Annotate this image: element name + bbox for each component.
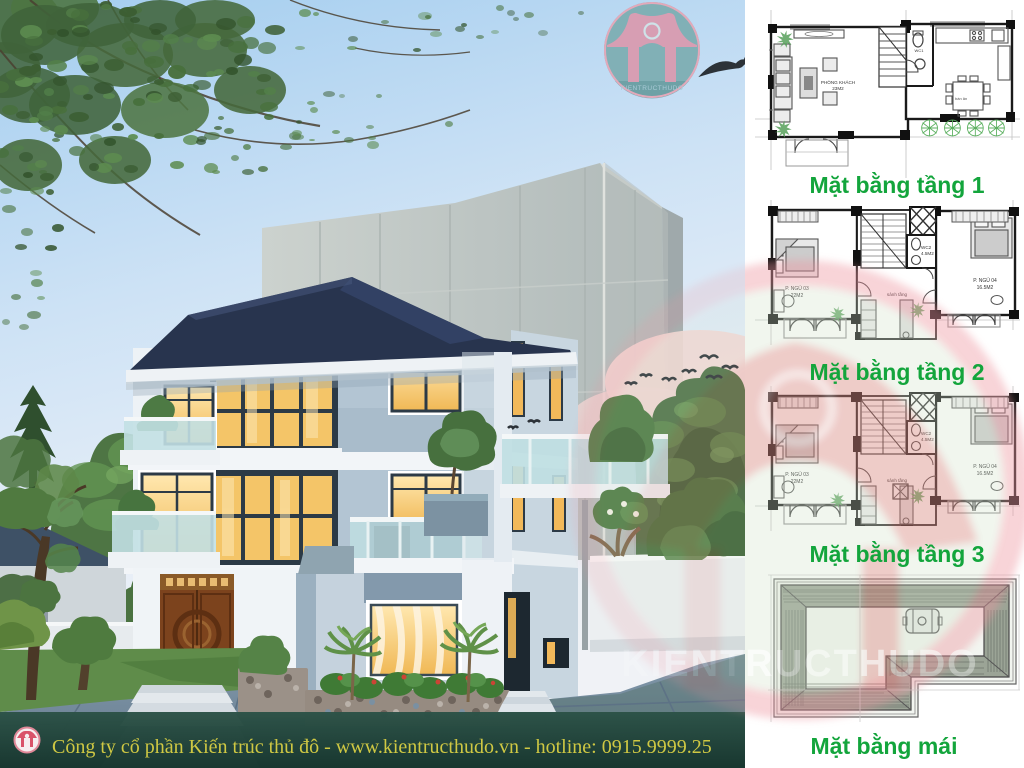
svg-text:WC2: WC2 — [921, 245, 932, 250]
svg-text:Mặt bằng mái: Mặt bằng mái — [811, 732, 958, 759]
svg-text:Mặt bằng tầng 2: Mặt bằng tầng 2 — [809, 358, 984, 385]
svg-text:Mặt bằng tầng 3: Mặt bằng tầng 3 — [809, 540, 984, 567]
svg-text:Mặt bằng tầng 1: Mặt bằng tầng 1 — [809, 171, 984, 198]
svg-text:KIENTRUCTHUDO: KIENTRUCTHUDO — [621, 85, 684, 92]
svg-text:WC1: WC1 — [915, 48, 925, 53]
svg-text:4.5M2: 4.5M2 — [921, 251, 934, 256]
svg-text:16.5M2: 16.5M2 — [977, 285, 994, 291]
svg-text:23M2: 23M2 — [832, 86, 844, 91]
svg-text:P. NGỦ 04: P. NGỦ 04 — [973, 277, 997, 284]
svg-text:Công ty cổ phần Kiến trúc thủ: Công ty cổ phần Kiến trúc thủ đô - www.k… — [52, 736, 712, 758]
svg-text:PHÒNG KHÁCH: PHÒNG KHÁCH — [821, 79, 855, 85]
svg-text:bàn ăn: bàn ăn — [955, 96, 967, 101]
